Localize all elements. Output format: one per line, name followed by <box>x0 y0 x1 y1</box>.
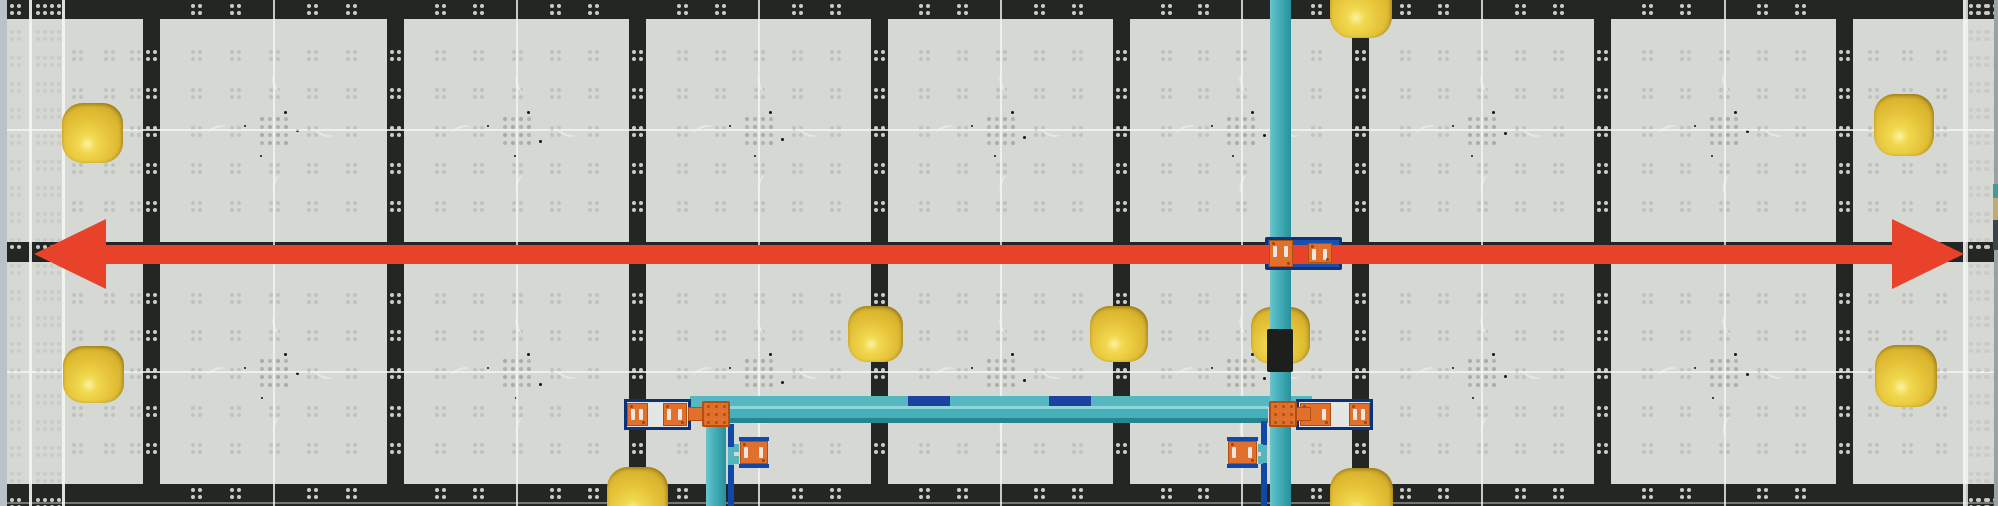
tile-peg-cluster <box>1311 375 1315 379</box>
left-edge-peg <box>17 349 21 353</box>
right-edge-peg <box>1977 212 1981 216</box>
tile-peg-cluster <box>1041 208 1045 212</box>
seam-peg-cluster <box>1116 443 1120 447</box>
tile-center-peg <box>260 133 264 137</box>
tile-peg-cluster <box>1553 300 1557 304</box>
tile-peg-cluster <box>684 201 688 205</box>
seam-peg-cluster <box>1597 170 1601 174</box>
tile-peg-cluster <box>1553 133 1557 137</box>
tile-peg-cluster <box>557 170 561 174</box>
tile-peg-cluster <box>276 201 280 205</box>
seam-peg-cluster <box>881 88 885 92</box>
tile-peg-cluster <box>1034 300 1038 304</box>
tile-center-peg <box>1251 133 1255 137</box>
tile-peg-cluster <box>307 95 311 99</box>
seam-peg-cluster <box>1161 495 1165 499</box>
tile-center-peg <box>1734 141 1738 145</box>
tile-peg-cluster <box>550 57 554 61</box>
right-edge-peg <box>1986 323 1990 327</box>
right-edge-peg <box>1875 300 1879 304</box>
tile-peg-cluster <box>1407 293 1411 297</box>
seam-peg-cluster <box>799 488 803 492</box>
left-edge-peg <box>79 293 83 297</box>
seam-peg-cluster <box>684 488 688 492</box>
tile-peg-cluster <box>1318 57 1322 61</box>
tile-swirl-mark <box>692 365 714 381</box>
tile-peg-cluster <box>761 57 765 61</box>
seam-peg-cluster <box>715 11 719 15</box>
tile-peg-cluster <box>1445 208 1449 212</box>
left-edge-peg <box>79 208 83 212</box>
tile-peg-cluster <box>1757 300 1761 304</box>
seam-peg-cluster <box>346 495 350 499</box>
tile-center-peg <box>761 383 765 387</box>
right-edge-peg <box>1909 330 1913 334</box>
left-edge-peg <box>43 271 47 275</box>
tile-peg-cluster <box>964 375 968 379</box>
tile-peg-cluster <box>1642 88 1646 92</box>
seam-peg-cluster <box>480 495 484 499</box>
seam-peg-cluster <box>792 11 796 15</box>
tile-swirl-mark <box>1415 123 1437 139</box>
tile-center-peg <box>995 359 999 363</box>
right-edge-peg <box>1868 95 1872 99</box>
left-edge-peg <box>111 208 115 212</box>
right-edge-peg <box>1969 238 1973 242</box>
seam-peg-cluster <box>874 450 878 454</box>
tile-peg-cluster <box>588 450 592 454</box>
tile-peg-cluster <box>722 170 726 174</box>
left-edge-peg <box>50 290 54 294</box>
tile-peg-cluster <box>1034 133 1038 137</box>
right-edge-peg <box>1936 88 1940 92</box>
tile-peg-cluster <box>442 88 446 92</box>
tile-peg-cluster <box>1795 413 1799 417</box>
tile-peg-cluster <box>588 57 592 61</box>
right-edge-peg <box>1969 420 1973 424</box>
right-edge-peg <box>1969 498 1973 502</box>
tile-peg-cluster <box>919 50 923 54</box>
tile-peg-cluster <box>1400 170 1404 174</box>
tile-center-peg <box>1243 141 1247 145</box>
tile-peg-cluster <box>1649 170 1653 174</box>
tile-peg-cluster <box>1726 337 1730 341</box>
right-edge-peg <box>1969 479 1973 483</box>
tile-center-peg <box>268 375 272 379</box>
tile-peg-cluster <box>480 57 484 61</box>
tile-peg-cluster <box>1515 300 1519 304</box>
tile-peg-cluster <box>353 450 357 454</box>
right-edge-peg <box>1986 56 1990 60</box>
tile-peg-cluster <box>1757 293 1761 297</box>
right-edge-line <box>1963 0 1966 506</box>
seam-peg-cluster <box>1355 330 1359 334</box>
seam-peg-cluster <box>550 495 554 499</box>
tile-peg-cluster <box>1642 293 1646 297</box>
seam-peg-cluster <box>1400 495 1404 499</box>
tile-peg-cluster <box>1168 208 1172 212</box>
tile-peg-cluster <box>1311 133 1315 137</box>
tile-center-peg <box>745 359 749 363</box>
right-edge-peg <box>1969 108 1973 112</box>
seam-peg-cluster <box>442 4 446 8</box>
tile-peg-cluster <box>353 375 357 379</box>
tile-peg-cluster <box>1003 337 1007 341</box>
seam-peg-cluster <box>1123 170 1127 174</box>
seam-peg-cluster <box>1515 11 1519 15</box>
seam-peg-cluster <box>595 11 599 15</box>
junction-rivet <box>723 421 726 424</box>
left-edge-peg <box>17 297 21 301</box>
tile-peg-cluster <box>1553 450 1557 454</box>
tile-peg-cluster <box>1719 413 1723 417</box>
seam-peg-cluster <box>1116 208 1120 212</box>
seam-peg-cluster <box>1079 488 1083 492</box>
tile-speck <box>1011 111 1014 114</box>
left-edge-peg <box>43 479 47 483</box>
right-edge-peg <box>1986 316 1990 320</box>
tile-peg-cluster <box>314 208 318 212</box>
right-edge-peg <box>1969 11 1973 15</box>
right-edge-peg <box>1868 208 1872 212</box>
tile-peg-cluster <box>588 300 592 304</box>
plate-rivet <box>1326 258 1329 261</box>
tile-peg-cluster <box>346 293 350 297</box>
left-edge-peg <box>17 453 21 457</box>
seam-peg-cluster <box>1362 337 1366 341</box>
tile-peg-cluster <box>1041 50 1045 54</box>
seam-peg-cluster <box>550 11 554 15</box>
tile-peg-cluster <box>1079 50 1083 54</box>
right-edge-peg <box>1986 427 1990 431</box>
left-edge-peg <box>17 271 21 275</box>
seam-peg-cluster <box>639 375 643 379</box>
left-edge-peg <box>10 167 14 171</box>
tile-peg-cluster <box>926 170 930 174</box>
left-edge-peg <box>137 300 141 304</box>
tile-peg-cluster <box>442 375 446 379</box>
seam-peg-cluster <box>1123 50 1127 54</box>
seam-peg-cluster <box>684 495 688 499</box>
game-ball <box>1330 0 1392 38</box>
tile-peg-cluster <box>1041 450 1045 454</box>
seam-peg-cluster <box>1846 208 1850 212</box>
seam-peg-cluster <box>1362 443 1366 447</box>
left-edge-peg <box>50 498 54 502</box>
seam-peg-cluster <box>1687 488 1691 492</box>
right-edge-peg <box>1936 133 1940 137</box>
tile-peg-cluster <box>237 201 241 205</box>
tile-center-peg <box>511 117 515 121</box>
seam-peg-cluster <box>1116 57 1120 61</box>
red-arrow-shaft <box>90 245 1908 264</box>
seam-peg-cluster <box>632 293 636 297</box>
tile-peg-cluster <box>1757 208 1761 212</box>
seam-peg-cluster <box>639 330 643 334</box>
seam-peg-cluster <box>1597 450 1601 454</box>
tile-peg-cluster <box>473 133 477 137</box>
tile-center-peg <box>1484 383 1488 387</box>
seam-peg-cluster <box>353 4 357 8</box>
right-edge-peg <box>1868 330 1872 334</box>
tile-peg-cluster <box>1205 133 1209 137</box>
tile-peg-cluster <box>1034 95 1038 99</box>
tile-peg-cluster <box>837 450 841 454</box>
tile-peg-cluster <box>1243 201 1247 205</box>
seam-peg-cluster <box>1597 133 1601 137</box>
tile-peg-cluster <box>1072 330 1076 334</box>
tile-peg-cluster <box>1445 293 1449 297</box>
seam-peg-cluster <box>1072 4 1076 8</box>
right-edge-peg <box>1943 95 1947 99</box>
tile-peg-cluster <box>1236 163 1240 167</box>
seam-peg-cluster <box>1839 443 1843 447</box>
tile-peg-cluster <box>1072 293 1076 297</box>
right-edge-peg <box>1875 337 1879 341</box>
right-edge-peg <box>1977 342 1981 346</box>
seam-peg-cluster <box>926 11 930 15</box>
left-edge-peg <box>104 163 108 167</box>
tile-peg-cluster <box>1764 57 1768 61</box>
seam-peg-cluster <box>442 11 446 15</box>
left-edge-peg <box>10 375 14 379</box>
tile-peg-cluster <box>1205 208 1209 212</box>
tile-speck <box>487 367 489 369</box>
tile-peg-cluster <box>435 170 439 174</box>
tile-peg-cluster <box>1438 375 1442 379</box>
tile-peg-cluster <box>519 170 523 174</box>
tile-peg-cluster <box>1168 163 1172 167</box>
left-edge-peg <box>10 63 14 67</box>
tile-peg-cluster <box>1764 170 1768 174</box>
tile-peg-cluster <box>550 375 554 379</box>
tile-peg-cluster <box>677 163 681 167</box>
tile-peg-cluster <box>276 208 280 212</box>
tile-peg-cluster <box>1311 170 1315 174</box>
tile-peg-cluster <box>1680 208 1684 212</box>
right-edge-peg <box>1909 50 1913 54</box>
left-edge-peg <box>130 450 134 454</box>
seam-peg-cluster <box>1597 57 1601 61</box>
tile-peg-cluster <box>1407 300 1411 304</box>
tile-peg-cluster <box>1079 208 1083 212</box>
tile-peg-cluster <box>1642 50 1646 54</box>
tile-speck <box>729 367 731 369</box>
seam-peg-cluster <box>881 208 885 212</box>
seam-peg-cluster <box>677 11 681 15</box>
tile-speck <box>1504 132 1507 135</box>
tile-center-peg <box>1468 133 1472 137</box>
seam-peg-cluster <box>237 495 241 499</box>
seam-peg-cluster <box>146 201 150 205</box>
seam-peg-cluster <box>1123 443 1127 447</box>
seam-peg-cluster <box>353 495 357 499</box>
tile-peg-cluster <box>276 337 280 341</box>
seam-peg-cluster <box>639 201 643 205</box>
seam-peg-cluster <box>1355 375 1359 379</box>
plate-slot <box>1232 447 1236 458</box>
tile-peg-cluster <box>595 443 599 447</box>
right-edge-peg <box>1943 201 1947 205</box>
tile-peg-cluster <box>1515 50 1519 54</box>
tile-peg-cluster <box>198 133 202 137</box>
tile-peg-cluster <box>1198 375 1202 379</box>
tile-peg-cluster <box>550 330 554 334</box>
tile-peg-cluster <box>307 163 311 167</box>
right-edge-peg <box>1986 186 1990 190</box>
left-edge-peg <box>36 316 40 320</box>
left-edge-peg <box>111 95 115 99</box>
tile-peg-cluster <box>1034 163 1038 167</box>
seam-peg-cluster <box>473 11 477 15</box>
tile-peg-cluster <box>346 201 350 205</box>
tile-swirl-mark <box>206 123 228 139</box>
tile-peg-cluster <box>1687 330 1691 334</box>
seam-peg-cluster <box>1846 450 1850 454</box>
tile-peg-cluster <box>715 170 719 174</box>
left-edge-peg <box>50 134 54 138</box>
tile-center-peg <box>527 359 531 363</box>
right-edge-peg <box>1977 472 1981 476</box>
tile-peg-cluster <box>595 163 599 167</box>
tile-peg-cluster <box>595 300 599 304</box>
tile-peg-cluster <box>1311 330 1315 334</box>
seam-peg-cluster <box>397 337 401 341</box>
seam-peg-cluster <box>1161 488 1165 492</box>
tile-peg-cluster <box>1649 95 1653 99</box>
tile-peg-cluster <box>1079 57 1083 61</box>
seam-peg-cluster <box>1407 11 1411 15</box>
left-edge-peg <box>17 11 21 15</box>
tile-peg-cluster <box>353 163 357 167</box>
left-edge-peg <box>43 427 47 431</box>
left-edge-peg <box>130 300 134 304</box>
left-edge-peg <box>36 401 40 405</box>
tile-peg-cluster <box>1034 201 1038 205</box>
tile-peg-cluster <box>1642 375 1646 379</box>
tile-center-peg <box>753 133 757 137</box>
seam-peg-cluster <box>639 88 643 92</box>
left-edge-peg <box>104 50 108 54</box>
right-edge-peg <box>1969 427 1973 431</box>
tile-peg-cluster <box>230 170 234 174</box>
tile-peg-cluster <box>1168 201 1172 205</box>
tile-peg-cluster <box>1719 443 1723 447</box>
left-edge-peg <box>72 330 76 334</box>
left-edge-peg <box>137 163 141 167</box>
tile-speck <box>1694 125 1696 127</box>
seam-peg-cluster <box>435 4 439 8</box>
tile-peg-cluster <box>1243 293 1247 297</box>
seam-peg-cluster <box>1116 95 1120 99</box>
seam-peg-cluster <box>1198 4 1202 8</box>
left-edge-peg <box>17 37 21 41</box>
tile-peg-cluster <box>792 443 796 447</box>
seam-peg-cluster <box>881 95 885 99</box>
tile-peg-cluster <box>191 443 195 447</box>
seam-peg-cluster <box>1649 495 1653 499</box>
left-edge-peg <box>50 323 54 327</box>
tile-peg-cluster <box>1198 133 1202 137</box>
seam-peg-cluster <box>639 300 643 304</box>
tile-center-peg <box>987 383 991 387</box>
tile-peg-cluster <box>1680 57 1684 61</box>
left-edge-peg <box>17 63 21 67</box>
left-edge-peg <box>10 115 14 119</box>
plate-rivet <box>1231 443 1234 446</box>
seam-peg-cluster <box>353 488 357 492</box>
left-edge-peg <box>79 413 83 417</box>
tile-peg-cluster <box>1311 57 1315 61</box>
tile-center-peg <box>1718 359 1722 363</box>
tile-center-peg <box>503 375 507 379</box>
left-edge-peg <box>111 443 115 447</box>
right-edge-peg <box>1936 450 1940 454</box>
seam-peg-cluster <box>799 4 803 8</box>
tile-peg-cluster <box>792 133 796 137</box>
right-edge-peg <box>1868 170 1872 174</box>
left-edge-peg <box>43 453 47 457</box>
right-edge-peg <box>1986 134 1990 138</box>
seam-peg-cluster <box>837 488 841 492</box>
tile-swirl-mark <box>934 365 956 381</box>
tile-peg-cluster <box>588 293 592 297</box>
seam-peg-cluster <box>1839 163 1843 167</box>
seam-peg-cluster <box>1649 488 1653 492</box>
tile-peg-cluster <box>1764 406 1768 410</box>
seam-peg-cluster <box>230 495 234 499</box>
tile-peg-cluster <box>926 57 930 61</box>
right-edge-peg <box>1902 88 1906 92</box>
tile-speck <box>1232 155 1234 157</box>
tile-peg-cluster <box>1680 300 1684 304</box>
stand-plate-clip <box>1258 456 1263 464</box>
seam-peg-cluster <box>1123 450 1127 454</box>
left-edge-peg <box>137 413 141 417</box>
tile-peg-cluster <box>926 133 930 137</box>
tile-peg-cluster <box>1522 443 1526 447</box>
tile-peg-cluster <box>715 95 719 99</box>
right-edge-peg <box>1875 88 1879 92</box>
tile-peg-cluster <box>473 375 477 379</box>
left-edge-peg <box>10 479 14 483</box>
left-edge-peg <box>10 323 14 327</box>
left-edge-peg <box>137 330 141 334</box>
tile-peg-cluster <box>191 133 195 137</box>
tile-peg-cluster <box>314 293 318 297</box>
seam-peg-cluster <box>146 337 150 341</box>
seam-peg-cluster <box>1839 95 1843 99</box>
left-edge-peg <box>137 450 141 454</box>
right-edge-peg <box>1977 63 1981 67</box>
tile-peg-cluster <box>595 375 599 379</box>
tile-peg-cluster <box>480 443 484 447</box>
right-edge-peg <box>1986 11 1990 15</box>
left-edge-peg <box>43 30 47 34</box>
tile-peg-cluster <box>1205 201 1209 205</box>
tile-peg-cluster <box>550 133 554 137</box>
tile-peg-cluster <box>1236 88 1240 92</box>
tile-peg-cluster <box>1198 450 1202 454</box>
seam-peg-cluster <box>397 170 401 174</box>
tile-peg-cluster <box>715 88 719 92</box>
seam-peg-cluster <box>390 170 394 174</box>
seam-peg-cluster <box>1355 57 1359 61</box>
left-edge-peg <box>104 293 108 297</box>
left-edge-peg <box>17 89 21 93</box>
seam-peg-cluster <box>881 375 885 379</box>
right-edge-peg <box>1977 316 1981 320</box>
